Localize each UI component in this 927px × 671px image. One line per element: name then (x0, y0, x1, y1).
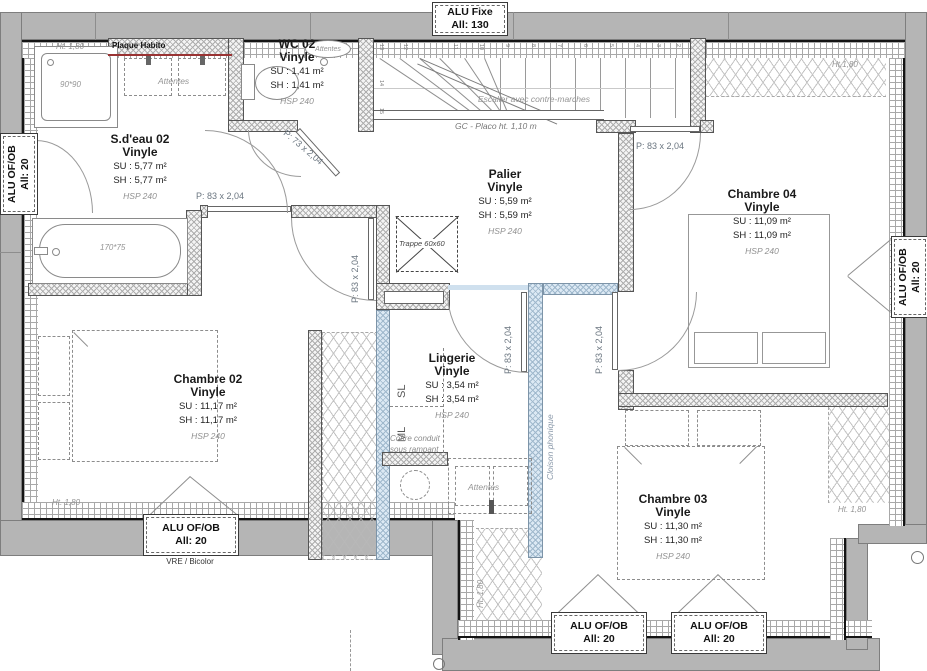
stair-number: 6 (582, 44, 588, 47)
bed-chambre03-pillow (625, 410, 689, 446)
stair-number: 2 (675, 44, 681, 47)
window-bottom-mid-swing (558, 574, 599, 613)
stair-number: 14 (378, 80, 384, 86)
wall-joint-tick (95, 12, 96, 40)
stair-number: 7 (556, 44, 562, 47)
door-sdeau-label: P: 83 x 2,04 (196, 191, 244, 201)
door-chambre04-leaf (630, 126, 700, 132)
room-label-wc: WC 02 Vinyle SU : 1,41 m² SH : 1,41 m² H… (247, 38, 347, 107)
bed-chambre04-pillow (762, 332, 826, 364)
plaque-habito-red-line (108, 54, 232, 56)
stair-number: 15 (378, 108, 384, 114)
wall-palier-chambre03 (543, 283, 618, 295)
window-bottom-left: ALU OF/OB All: 20 (143, 514, 239, 556)
stair-number: 3 (655, 44, 661, 47)
window-top-alu-fixe: ALU Fixe All: 130 (432, 2, 508, 36)
plaque-habito-label: Plaque Habito (112, 41, 165, 50)
ht180-top-right: Ht.1,80 (832, 60, 858, 69)
boundary-dash-line (350, 630, 351, 671)
wall-right-cap (858, 524, 927, 544)
room-label-chambre04: Chambre 04 Vinyle SU : 11,09 m² SH : 11,… (712, 188, 812, 257)
slope-zone-chambre04 (706, 58, 886, 97)
floor-drain-circle (400, 470, 430, 500)
coffre-label2: sous rampant (390, 445, 438, 454)
wall-joint-tick (728, 12, 729, 40)
stair-number: 13 (378, 44, 384, 50)
window-right-swing (847, 239, 891, 276)
stair-number: 11 (452, 44, 458, 50)
trappe-label: Trappe 60x60 (399, 239, 445, 248)
door-chambre03-arc (618, 292, 697, 371)
shower-drain (47, 59, 54, 66)
stair-number: 10 (478, 44, 484, 50)
window-bottom-right: ALU OF/OB All: 20 (671, 612, 767, 654)
door-lingerie-label: P: 83 x 2,04 (503, 298, 513, 374)
coffre-label: Coffre conduit (390, 434, 440, 443)
stair-number: 5 (608, 44, 614, 47)
ht180-bottom-center: Ht. 1,80 (476, 568, 485, 608)
wall-chambre04-upper (690, 38, 706, 133)
door-chambre02-arc (291, 218, 376, 301)
window-left: ALU OF/OB All: 20 (0, 133, 38, 215)
cloison-phonique-label: Cloison phonique (545, 400, 555, 480)
ht180-top-left: Ht. 1,80 (56, 42, 84, 51)
bed-chambre02-pillow (38, 402, 70, 460)
wall-wc-stairs (358, 38, 374, 132)
stair-guard (374, 110, 604, 120)
wall-palier-chambre02 (291, 205, 377, 218)
stair-guard-label: GC - Placo ht. 1,10 m (455, 121, 537, 131)
room-label-chambre02: Chambre 02 Vinyle SU : 11,17 m² SH : 11,… (158, 373, 258, 442)
downspout-circle (911, 551, 924, 564)
room-label-lingerie: Lingerie Vinyle SU : 3,54 m² SH : 3,54 m… (402, 352, 502, 421)
wall-cloison-phonique (528, 283, 543, 558)
tile-band-step-right (830, 538, 846, 640)
bathtub-size-label: 170*75 (100, 243, 125, 252)
room-label-palier: Palier Vinyle SU : 5,59 m² SH : 5,59 m² … (455, 168, 555, 237)
wall-left (0, 12, 22, 554)
wall-tub-south (28, 283, 188, 296)
faucet-icon (489, 500, 494, 514)
bathtub-tap (34, 247, 48, 255)
lingerie-attentes-label: Attentes (468, 482, 499, 492)
vanity-attentes-label: Attentes (158, 76, 189, 86)
downspout-circle (433, 658, 445, 670)
floor-plan: Escalier avec contre-marches GC - Placo … (0, 0, 927, 671)
door-chambre04-label: P: 83 x 2,04 (636, 141, 684, 151)
bed-chambre03-pillow (697, 410, 761, 446)
window-right: ALU OF/OB All: 20 (891, 236, 927, 318)
wall-bottom-right (442, 638, 880, 671)
stair-label: Escalier avec contre-marches (478, 94, 590, 104)
tile-band-bottom-right (458, 620, 872, 638)
wall-chambre02-east (308, 330, 322, 560)
room-label-chambre03: Chambre 03 Vinyle SU : 11,30 m² SH : 11,… (623, 493, 723, 562)
wall-tub-east (186, 210, 202, 296)
wall-chambre04-door-post (700, 120, 714, 133)
ht180-right-mid: Ht. 1,80 (838, 505, 866, 514)
shower-size-label: 90*90 (60, 80, 81, 89)
window-bottom-mid: ALU OF/OB All: 20 (551, 612, 647, 654)
slope-zone-right (828, 407, 889, 503)
stair-number: 4 (634, 44, 640, 47)
stair-number: 9 (504, 44, 510, 47)
wall-joint-tick (310, 12, 311, 40)
stair-number: 12 (402, 44, 408, 50)
wall-joint-tick (513, 12, 514, 40)
wall-step-left (432, 520, 458, 655)
bed-chambre04-pillow (694, 332, 758, 364)
window-bottom-left-note: VRE / Bicolor (143, 557, 237, 566)
window-right-swing (847, 276, 891, 313)
slope-zone-storage (322, 332, 378, 560)
wall-joint-tick (0, 252, 22, 253)
cloison-door-strip (448, 285, 528, 290)
door-chambre03-label: P: 83 x 2,04 (594, 298, 604, 374)
ht180-bottom-left: Ht. 1,80 (52, 498, 80, 507)
stair-number: 8 (530, 44, 536, 47)
bed-chambre02-pillow (38, 336, 70, 396)
wall-lingerie-west (376, 310, 390, 560)
wall-chambre04-chambre03 (618, 393, 888, 407)
door-chambre02-label: P: 83 x 2,04 (350, 227, 360, 303)
wall-lingerie-closet (382, 452, 448, 466)
bathtub-drain (52, 248, 60, 256)
room-label-sdeau: S.d'eau 02 Vinyle SU : 5,77 m² SH : 5,77… (85, 133, 195, 202)
niche-slot (384, 291, 444, 304)
